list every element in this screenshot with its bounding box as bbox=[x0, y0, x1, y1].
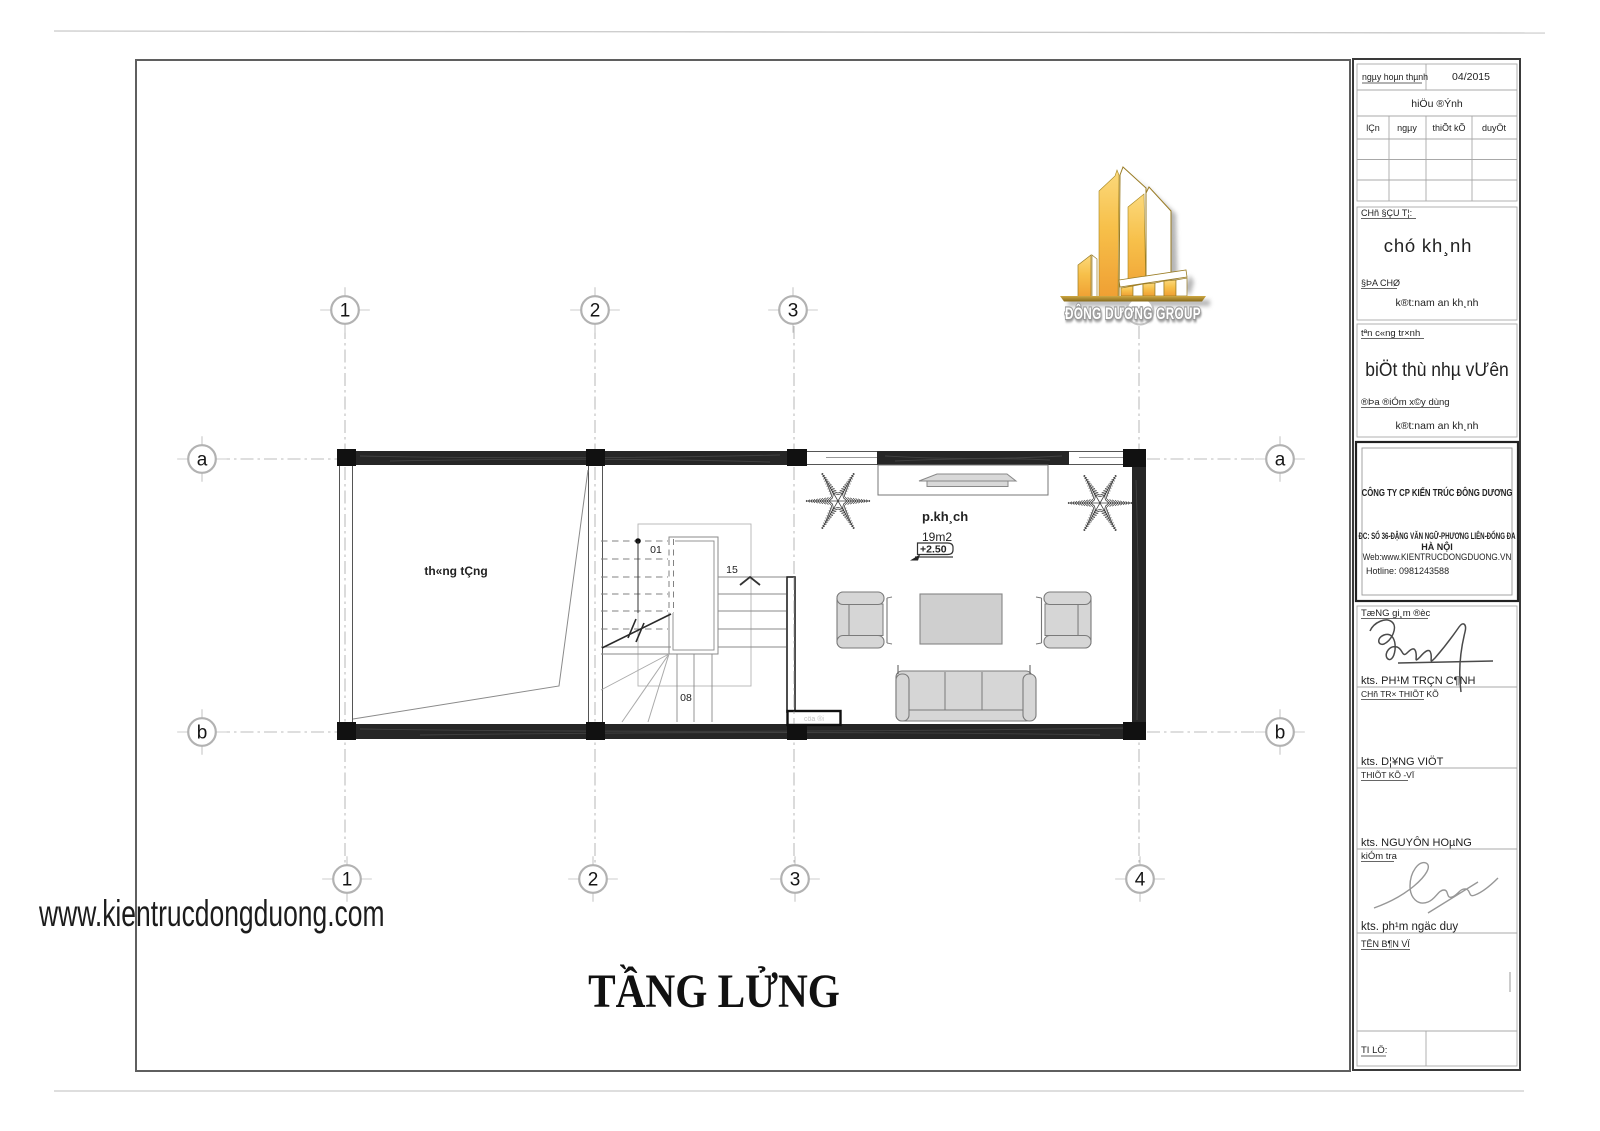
svg-text:thiÕt kÕ: thiÕt kÕ bbox=[1432, 123, 1465, 133]
svg-text:hiÖu ®Ýnh: hiÖu ®Ýnh bbox=[1411, 97, 1463, 110]
svg-text:Hotline: 0981243588: Hotline: 0981243588 bbox=[1366, 566, 1449, 576]
svg-text:2: 2 bbox=[590, 301, 601, 322]
svg-text:kts. ph¹m ngäc duy: kts. ph¹m ngäc duy bbox=[1361, 921, 1458, 933]
svg-text:ĐC: SỐ 36-ĐẶNG VĂN NGỮ-PHƯƠNG: ĐC: SỐ 36-ĐẶNG VĂN NGỮ-PHƯƠNG LIÊN-ĐỐNG … bbox=[1359, 530, 1516, 542]
svg-text:b: b bbox=[1275, 723, 1286, 744]
svg-text:THIÕT KÕ -VÏ: THIÕT KÕ -VÏ bbox=[1361, 770, 1415, 780]
svg-text:01: 01 bbox=[650, 544, 662, 556]
svg-text:CHñ §ÇU T¦:: CHñ §ÇU T¦: bbox=[1361, 208, 1412, 218]
svg-text:2: 2 bbox=[588, 870, 599, 891]
svg-text:4: 4 bbox=[1135, 870, 1146, 891]
svg-text:08: 08 bbox=[680, 692, 692, 704]
svg-text:kts. PH¹M TRÇN C¶NH: kts. PH¹M TRÇN C¶NH bbox=[1361, 675, 1476, 687]
svg-text:k®t:nam an kh¸nh: k®t:nam an kh¸nh bbox=[1395, 297, 1478, 309]
svg-text:1: 1 bbox=[340, 301, 351, 322]
svg-text:1: 1 bbox=[342, 870, 353, 891]
svg-text:chó kh¸nh: chó kh¸nh bbox=[1384, 235, 1472, 256]
svg-text:biÖt thù nhµ vƯên: biÖt thù nhµ vƯên bbox=[1365, 358, 1509, 380]
svg-text:3: 3 bbox=[788, 301, 799, 322]
svg-text:tªn c«ng tr×nh: tªn c«ng tr×nh bbox=[1361, 328, 1420, 339]
svg-text:§ÞA CHØ: §ÞA CHØ bbox=[1361, 278, 1400, 288]
svg-text:CHñ TR× THIÕT KÕ: CHñ TR× THIÕT KÕ bbox=[1361, 689, 1439, 699]
svg-text:TÊN B¶N VÏ: TÊN B¶N VÏ bbox=[1361, 939, 1410, 949]
svg-text:k®t:nam an kh¸nh: k®t:nam an kh¸nh bbox=[1395, 420, 1478, 432]
svg-text:HÀ NỘI: HÀ NỘI bbox=[1421, 541, 1453, 552]
svg-text:Web:www.KIENTRUCDONGDUONG.VN: Web:www.KIENTRUCDONGDUONG.VN bbox=[1363, 552, 1512, 563]
svg-text:ngµy: ngµy bbox=[1397, 123, 1417, 133]
svg-text:lÇn: lÇn bbox=[1366, 123, 1380, 133]
svg-text:TI LÖ:: TI LÖ: bbox=[1361, 1045, 1387, 1056]
svg-text:duyÖt: duyÖt bbox=[1482, 123, 1507, 133]
svg-text:19m2: 19m2 bbox=[922, 530, 952, 544]
svg-text:p.kh¸ch: p.kh¸ch bbox=[922, 509, 968, 524]
svg-text:a: a bbox=[197, 450, 208, 471]
svg-text:3: 3 bbox=[790, 870, 801, 891]
svg-text:th«ng tÇng: th«ng tÇng bbox=[424, 564, 487, 578]
svg-text:TæNG gi¸m ®èc: TæNG gi¸m ®èc bbox=[1361, 608, 1431, 619]
svg-text:kiÓm tra: kiÓm tra bbox=[1361, 851, 1398, 862]
svg-text:kts. NGUYÔN HOµNG: kts. NGUYÔN HOµNG bbox=[1361, 836, 1472, 849]
svg-text:a: a bbox=[1275, 450, 1286, 471]
svg-text:15: 15 bbox=[726, 564, 738, 576]
svg-text:TẦNG LỬNG: TẦNG LỬNG bbox=[588, 964, 840, 1018]
svg-text:b: b bbox=[197, 723, 208, 744]
svg-text:04/2015: 04/2015 bbox=[1452, 71, 1490, 83]
svg-text:www.kientrucdongduong.com: www.kientrucdongduong.com bbox=[38, 893, 384, 934]
svg-text:kts. D¦¥NG VIÖT: kts. D¦¥NG VIÖT bbox=[1361, 756, 1444, 768]
svg-text:+2.50: +2.50 bbox=[920, 544, 947, 556]
svg-text:ĐÔNG DƯƠNG GROUP: ĐÔNG DƯƠNG GROUP bbox=[1065, 303, 1201, 324]
svg-text:CÔNG TY CP KIẾN TRÚC ĐÔNG DƯƠN: CÔNG TY CP KIẾN TRÚC ĐÔNG DƯƠNG bbox=[1362, 486, 1513, 498]
svg-text:®Þa ®iÓm x©y dùng: ®Þa ®iÓm x©y dùng bbox=[1361, 397, 1450, 408]
svg-text:ngµy hoµn thµnh: ngµy hoµn thµnh bbox=[1362, 72, 1428, 82]
svg-text:cöa ®i: cöa ®i bbox=[804, 715, 824, 723]
